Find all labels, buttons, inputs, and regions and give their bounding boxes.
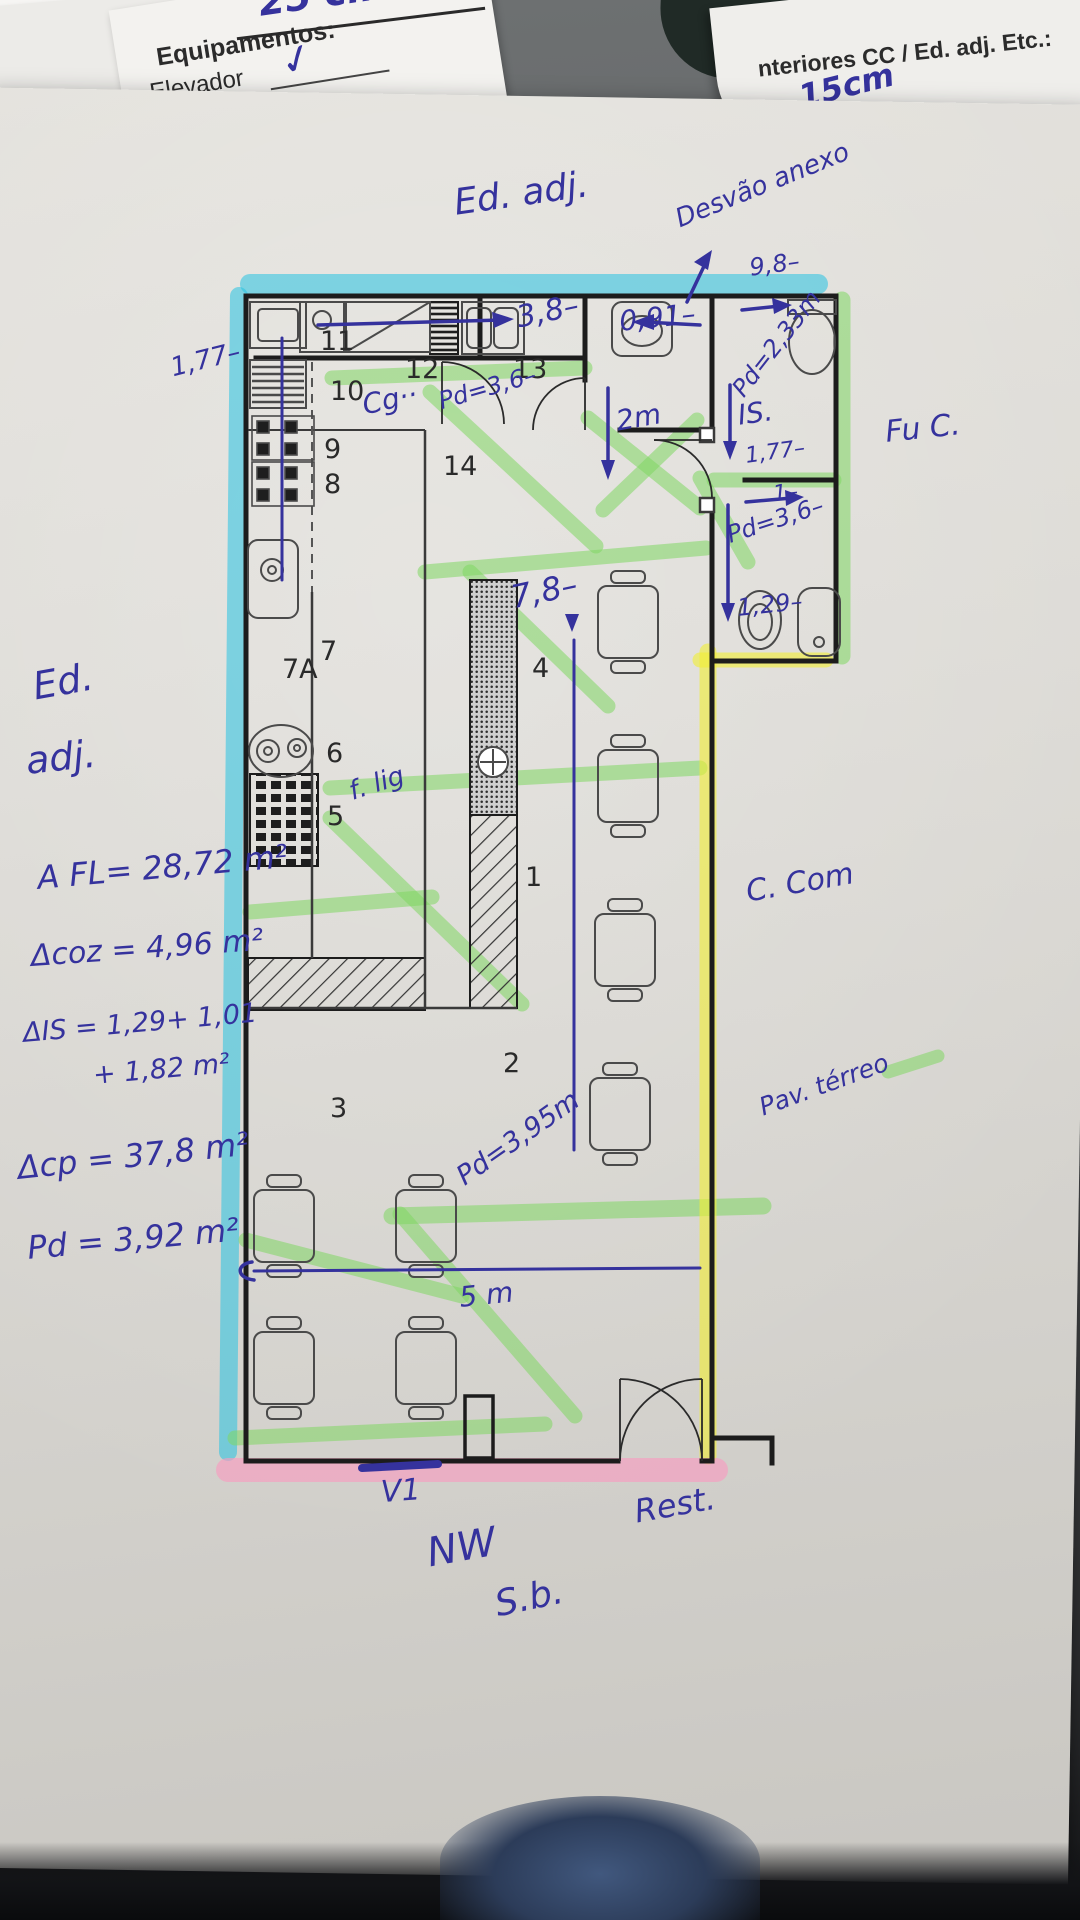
annotation-ed-left-1: Ed. — [30, 658, 96, 706]
dim-1-77-right: 1,77– — [744, 438, 806, 468]
handwritten-annotations: Ed. adj. Desvão anexo 9,8– 3,8– 0,91– Pd… — [0, 0, 1080, 1920]
label-rest: Rest. — [632, 1482, 718, 1528]
annotation-fu-c: Fu C. — [884, 410, 962, 448]
annotation-ed-left-2: adj. — [24, 735, 98, 780]
label-sb: S.b. — [492, 1574, 567, 1623]
formula-a-cp: Δcp = 37,8 m² — [16, 1128, 250, 1184]
annotation-desvao: Desvão anexo — [672, 139, 853, 232]
annotation-ed-adj-top: Ed. adj. — [452, 167, 591, 221]
dim-3-8: 3,8– — [514, 291, 582, 333]
formula-a-is-1: ΔIS = 1,29+ 1,01 — [22, 1000, 258, 1047]
label-v1: V1 — [380, 1475, 422, 1508]
dim-0-91: 0,91– — [618, 300, 697, 336]
dim-1-29: 1,29– — [736, 589, 804, 620]
label-is: IS. — [736, 397, 774, 430]
formula-a-coz: Δcoz = 4,96 m² — [30, 926, 264, 972]
dim-7-8: 7,8– — [508, 568, 580, 613]
label-nw: NW — [424, 1522, 499, 1573]
blue-object-bottom — [440, 1796, 760, 1920]
formula-a-fl: A FL= 28,72 m² — [36, 840, 289, 894]
dim-9-8: 9,8– — [748, 249, 801, 280]
annotation-f-lig: f. lig — [346, 763, 407, 805]
dim-pd-2-33: Pd=2,33m — [728, 286, 825, 401]
annotation-pav-terreo: Pav. térreo — [756, 1050, 892, 1120]
dim-5m: 5 m — [458, 1278, 515, 1311]
annotation-cg: Cg·· — [360, 381, 420, 420]
dim-2m: 2m — [614, 400, 663, 435]
dim-1-77-left: 1,77– — [168, 339, 243, 381]
dim-pd-3-95: Pd=3,95m — [452, 1086, 584, 1190]
photo-of-annotated-floor-plan: Equipamentos: Elevador ✓ Rede de C 25 cm… — [0, 0, 1080, 1920]
formula-a-is-2: + 1,82 m² — [92, 1050, 231, 1089]
dim-pd-3-6-kitchen: Pd=3,6– — [436, 362, 539, 413]
formula-pd-bottom: Pd = 3,92 m² — [26, 1214, 240, 1264]
annotation-c-com: C. Com — [744, 859, 856, 907]
